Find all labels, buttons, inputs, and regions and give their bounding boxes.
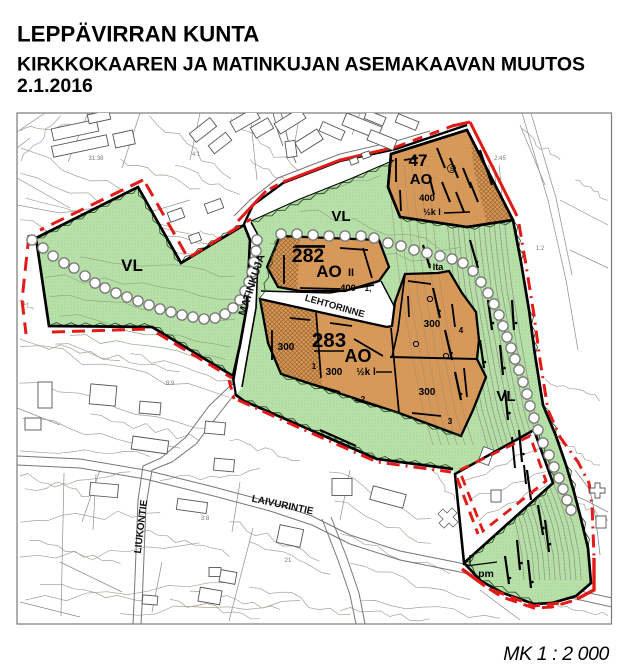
svg-text:4:1: 4:1 [192,152,201,158]
svg-text:8:9: 8:9 [166,381,175,387]
svg-text:3: 3 [448,417,453,426]
svg-text:1: 1 [312,362,317,371]
svg-text:1:2: 1:2 [536,246,545,252]
svg-text:MK 1 : 2 000: MK 1 : 2 000 [503,643,609,665]
svg-text:400: 400 [419,193,435,204]
svg-text:300: 300 [419,387,436,398]
svg-text:AO: AO [410,171,433,188]
svg-text:II: II [348,267,354,279]
svg-text:Ita: Ita [433,262,444,272]
svg-text:300: 300 [424,319,441,330]
svg-text:pm: pm [478,568,494,580]
svg-text:VL: VL [121,256,143,275]
svg-text:47: 47 [409,151,428,170]
svg-text:AO: AO [345,346,372,366]
svg-text:2:45: 2:45 [494,156,506,162]
svg-text:VL: VL [496,388,515,405]
svg-text:300: 300 [326,367,343,378]
svg-text:VL: VL [331,208,350,225]
svg-text:AO: AO [316,262,342,281]
svg-text:3:8: 3:8 [201,516,210,522]
svg-text:LEPPÄVIRRAN KUNTA: LEPPÄVIRRAN KUNTA [17,22,259,47]
svg-text:21: 21 [285,558,292,564]
svg-text:400: 400 [340,283,356,294]
svg-text:½k l: ½k l [356,367,376,378]
svg-text:31:38: 31:38 [88,156,104,162]
svg-text:2: 2 [361,395,366,404]
svg-text:KIRKKOKAAREN JA MATINKUJAN ASE: KIRKKOKAAREN JA MATINKUJAN ASEMAKAAVAN M… [17,54,585,76]
svg-text:1,: 1, [365,284,372,293]
svg-text:4: 4 [459,326,464,335]
svg-text:300: 300 [278,342,295,353]
svg-text:½k l: ½k l [423,207,441,217]
svg-text:283: 283 [312,329,346,352]
svg-text:2.1.2016: 2.1.2016 [17,75,93,97]
